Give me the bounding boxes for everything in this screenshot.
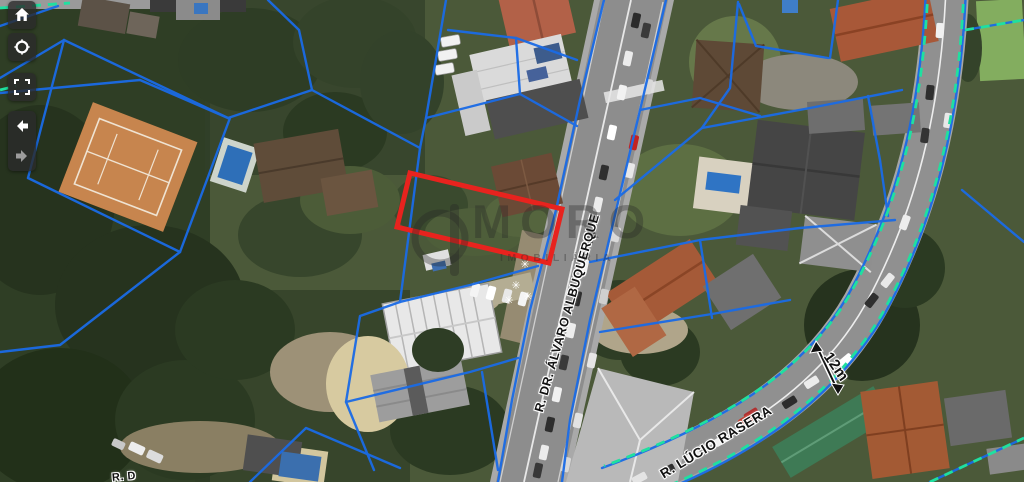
back-arrow-icon <box>14 118 30 134</box>
history-controls <box>8 111 36 171</box>
forward-button[interactable] <box>8 141 36 171</box>
locate-button[interactable] <box>8 33 36 61</box>
back-button[interactable] <box>8 111 36 141</box>
svg-text:✳: ✳ <box>504 295 513 307</box>
home-button[interactable] <box>8 1 36 29</box>
fullscreen-icon <box>14 79 30 95</box>
home-icon <box>14 7 30 23</box>
forward-arrow-icon <box>14 148 30 164</box>
svg-text:✳: ✳ <box>523 291 532 303</box>
svg-text:✳: ✳ <box>520 259 529 271</box>
map-canvas[interactable]: ✳ ✳ ✳ ✳ <box>0 0 1024 482</box>
fullscreen-button[interactable] <box>8 73 36 101</box>
map-viewport[interactable]: ✳ ✳ ✳ ✳ R. DR. ÁLVARO ALBUQUERQUE R. LÚC… <box>0 0 1024 482</box>
locate-icon <box>14 39 30 55</box>
svg-text:✳: ✳ <box>511 280 520 292</box>
